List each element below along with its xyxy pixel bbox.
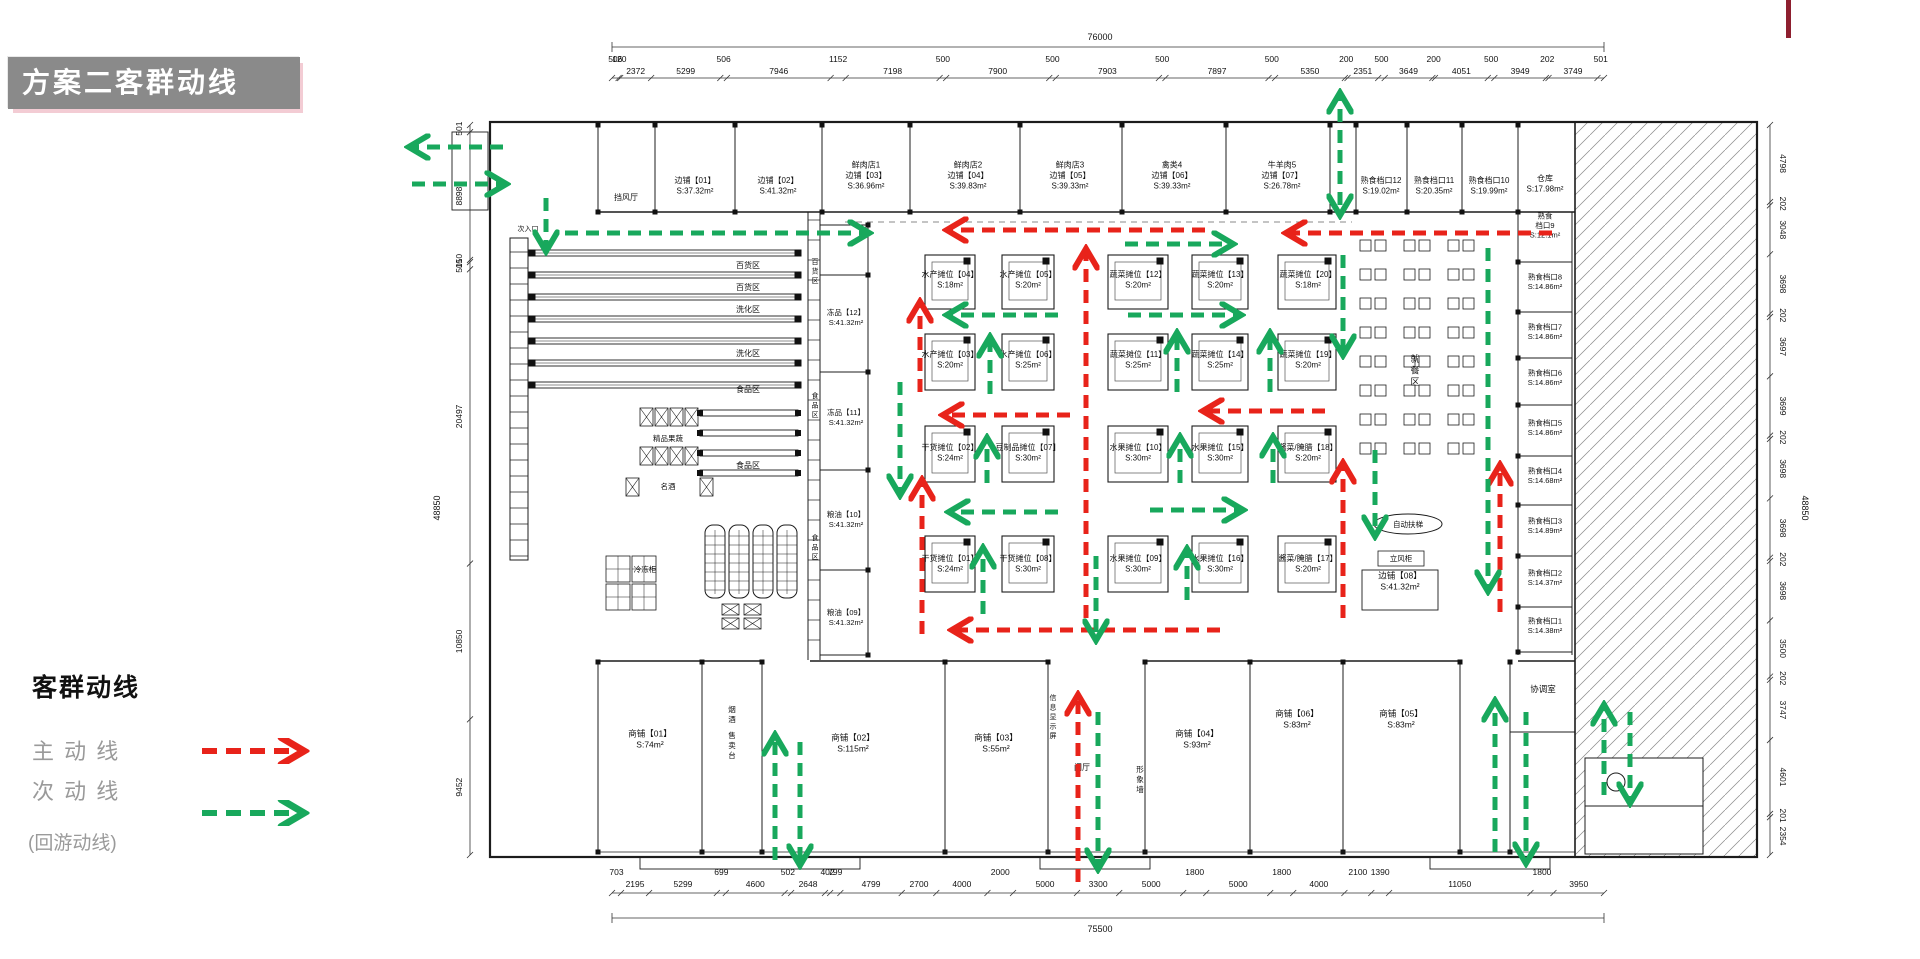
secondary-flow-arrow-icon [196, 800, 316, 826]
right-stall-label: 熟食档口1S:14.38m² [1528, 615, 1563, 635]
dim-top-seg: 2351 [1353, 66, 1372, 76]
market-stall-label: 蔬菜摊位【14】S:25m² [1192, 349, 1249, 370]
dim-bottom-seg: 799 [828, 867, 842, 877]
dim-bottom-seg: 502 [781, 867, 795, 877]
dim-bottom-total: 75500 [1087, 924, 1112, 934]
plan-label: 名酒 [661, 481, 676, 491]
right-stall-label: 熟食档口5S:14.86m² [1528, 417, 1563, 437]
dim-top-seg: 4051 [1452, 66, 1471, 76]
bottom-shop-label: 协调室 [1530, 684, 1556, 694]
top-shop-label: 鲜肉店3边铺【05】S:39.33m² [1050, 160, 1091, 191]
dim-right-seg: 3500 [1778, 639, 1788, 658]
dim-bottom-seg: 5299 [674, 879, 693, 889]
plan-label: 食品区 [736, 460, 760, 470]
dim-top-seg: 506 [717, 54, 731, 64]
plan-label: 挡风厅 [614, 192, 638, 202]
plan-label-vertical: 食品区 [812, 533, 819, 561]
market-stall-label: 水果摊位【16】S:30m² [1192, 553, 1249, 574]
legend-secondary-label: 次 动 线 [32, 779, 120, 804]
dim-top-seg: 5299 [676, 66, 695, 76]
legend-row-secondary: 次 动 线 [26, 774, 356, 814]
dim-bottom-seg: 5000 [1229, 879, 1248, 889]
dim-left-seg: 10850 [454, 629, 464, 653]
dim-top-seg: 501 [1594, 54, 1608, 64]
legend-main-label: 主 动 线 [32, 739, 120, 764]
dim-bottom-seg: 1390 [1371, 867, 1390, 877]
market-stall-label: 干货摊位【01】S:24m² [922, 553, 979, 574]
top-shop-label: 仓库S:17.98m² [1527, 173, 1564, 194]
dim-right-seg: 3698 [1778, 519, 1788, 538]
plan-label-vertical: 信息显示屏 [1050, 693, 1057, 740]
dim-right-seg: 202 [1778, 197, 1788, 211]
market-stall-label: 干货摊位【08】S:30m² [1000, 553, 1057, 574]
bottom-shop-label: 边铺【08】S:41.32m² [1378, 571, 1421, 592]
market-stall-label: 水产摊位【04】S:18m² [922, 269, 979, 290]
market-stall-label: 干货摊位【02】S:24m² [922, 442, 979, 463]
right-stall-label: 熟食档口8S:14.86m² [1528, 271, 1563, 291]
dim-right-seg: 201 [1778, 808, 1788, 822]
bottom-shop-label: 商铺【01】S:74m² [628, 729, 671, 750]
dim-top-seg: 7900 [988, 66, 1007, 76]
dim-bottom-seg: 5000 [1142, 879, 1161, 889]
right-stall-label: 熟食档口3S:14.89m² [1528, 515, 1563, 535]
market-stall-label: 蔬菜摊位【20】S:18m² [1280, 269, 1337, 290]
market-stall-label: 蔬菜摊位【13】S:20m² [1192, 269, 1249, 290]
legend-row-main: 主 动 线 [26, 734, 356, 774]
dim-bottom-seg: 4000 [1309, 879, 1328, 889]
top-shop-label: 牛羊肉5边铺【07】S:26.78m² [1262, 160, 1303, 191]
plan-label-vertical: 百货区 [812, 258, 819, 285]
dim-bottom-seg: 1800 [1532, 867, 1551, 877]
dim-bottom-seg: 2700 [910, 879, 929, 889]
legend-note-label: (回游动线) [28, 828, 356, 855]
dim-bottom-seg: 5000 [1036, 879, 1055, 889]
dim-bottom-seg: 3300 [1089, 879, 1108, 889]
top-shop-label: 鲜肉店1边铺【03】S:36.96m² [846, 160, 887, 191]
dim-top-seg: 500 [1484, 54, 1498, 64]
dim-top-seg: 500 [1265, 54, 1279, 64]
bottom-shop-label: 商铺【02】S:115m² [831, 733, 874, 754]
dim-right-seg: 2354 [1778, 827, 1788, 846]
dim-bottom-seg: 4799 [862, 879, 881, 889]
plan-label: 立风柜 [1390, 553, 1413, 563]
plan-label: 百货区 [736, 260, 760, 270]
dim-top-seg: 7946 [769, 66, 788, 76]
dim-right-seg: 3048 [1778, 220, 1788, 239]
plan-label-vertical: 食品区 [812, 391, 819, 419]
market-stall-label: 豆制品摊位【07】S:30m² [996, 442, 1061, 463]
dim-bottom-seg: 2000 [991, 867, 1010, 877]
dim-right-seg: 3698 [1778, 275, 1788, 294]
top-shop-label: 边铺【02】S:41.32m² [758, 175, 799, 196]
dim-top-total: 76000 [1087, 32, 1112, 42]
market-stall-label: 水产摊位【03】S:20m² [922, 349, 979, 370]
plan-label: 洗化区 [736, 348, 760, 358]
plan-label: 精品果蔬 [653, 433, 683, 443]
plan-label-vertical: 就餐区 [1410, 353, 1419, 387]
dim-right-seg: 3699 [1778, 397, 1788, 416]
dim-top-seg: 200 [1427, 54, 1441, 64]
dim-top-seg: 500 [1155, 54, 1169, 64]
market-stall-label: 水产摊位【06】S:25m² [1000, 349, 1057, 370]
top-shop-label: 鲜肉店2边铺【04】S:39.83m² [948, 160, 989, 191]
dim-bottom-seg: 703 [609, 867, 623, 877]
plan-label-vertical: 形象墙 [1136, 765, 1144, 794]
dim-right-seg: 202 [1778, 308, 1788, 322]
dim-bottom-seg: 1800 [1272, 867, 1291, 877]
market-stall-label: 水果摊位【15】S:30m² [1192, 442, 1249, 463]
right-stall-label: 熟食档口2S:14.37m² [1528, 567, 1563, 587]
dim-bottom-seg: 2195 [626, 879, 645, 889]
dim-top-seg: 5350 [1301, 66, 1320, 76]
building-structure [452, 122, 1757, 869]
dim-right-seg: 4601 [1778, 768, 1788, 787]
dim-right-seg: 3698 [1778, 581, 1788, 600]
plan-label: 食品区 [736, 384, 760, 394]
market-stall-label: 蔬菜摊位【11】S:25m² [1110, 349, 1166, 370]
dim-bottom-seg: 1800 [1185, 867, 1204, 877]
dim-left-seg: 501 [454, 121, 464, 135]
dim-top-seg: 500 [1374, 54, 1388, 64]
dim-top-seg: 7903 [1098, 66, 1117, 76]
slide: 方案二客群动线 76000506120237252995067946115271… [0, 0, 1920, 959]
dim-top-seg: 500 [1045, 54, 1059, 64]
dim-top-seg: 3649 [1399, 66, 1418, 76]
bottom-shop-label: 商铺【04】S:93m² [1175, 729, 1218, 750]
bottom-shop-label: 商铺【03】S:55m² [974, 733, 1017, 754]
market-stall-label: 水果摊位【09】S:30m² [1110, 553, 1167, 574]
dim-top-seg: 3749 [1564, 66, 1583, 76]
dim-right-total: 48850 [1800, 495, 1810, 520]
side-shop-label: 粮油【10】S:41.32m² [827, 509, 865, 529]
legend-heading: 客群动线 [32, 668, 356, 704]
plan-label: 百货区 [736, 282, 760, 292]
legend: 客群动线 主 动 线 次 动 线 (回游动线) [26, 668, 356, 855]
dim-right-seg: 3698 [1778, 459, 1788, 478]
main-flow-arrow-icon [196, 738, 316, 764]
dim-top-seg: 202 [1540, 54, 1554, 64]
plan-label: 冷冻柜 [634, 564, 657, 574]
right-stall-label: 熟食档口4S:14.68m² [1528, 465, 1563, 485]
dim-bottom-seg: 699 [714, 867, 728, 877]
market-stall-label: 水产摊位【05】S:20m² [1000, 269, 1057, 290]
dim-left-seg: 9452 [454, 777, 464, 796]
dim-bottom-seg: 3950 [1569, 879, 1588, 889]
dim-top-seg: 2372 [626, 66, 645, 76]
dim-left-seg: 501 [454, 258, 464, 272]
plan-label: 洗化区 [736, 304, 760, 314]
dim-left-seg: 8898 [454, 186, 464, 205]
dim-right-seg: 3697 [1778, 337, 1788, 356]
dim-top-seg: 7198 [883, 66, 902, 76]
dim-top-seg: 200 [1339, 54, 1353, 64]
dim-right-seg: 202 [1778, 671, 1788, 685]
side-shop-label: 粮油【09】S:41.32m² [827, 607, 865, 627]
top-shop-label: 熟食档口12S:19.02m² [1361, 175, 1402, 196]
dim-bottom-seg: 4600 [746, 879, 765, 889]
bottom-shop-label: 商铺【06】S:83m² [1275, 709, 1318, 730]
top-shop-label: 禽类4边铺【06】S:39.33m² [1152, 160, 1193, 191]
dim-top-seg: 7897 [1208, 66, 1227, 76]
market-stall-label: 蔬菜摊位【19】S:20m² [1280, 349, 1337, 370]
dim-right-seg: 202 [1778, 430, 1788, 444]
dim-bottom-seg: 4000 [952, 879, 971, 889]
dim-right-seg: 3747 [1778, 701, 1788, 720]
plan-label-vertical: 售卖台 [728, 730, 736, 760]
dim-bottom-seg: 11050 [1448, 879, 1471, 889]
top-shop-label: 边铺【01】S:37.32m² [675, 175, 716, 196]
plan-label: 次入口 [518, 224, 539, 233]
plan-label: 自动扶梯 [1393, 519, 1423, 529]
dim-right-seg: 4798 [1778, 154, 1788, 173]
dim-top-seg: 120 [612, 54, 626, 64]
top-shop-label: 熟食档口10S:19.99m² [1469, 175, 1510, 196]
dim-top-seg: 1152 [829, 54, 848, 64]
market-stall-label: 水果摊位【10】S:30m² [1110, 442, 1167, 463]
dim-right-seg: 202 [1778, 552, 1788, 566]
top-shop-label: 熟食档口11S:20.35m² [1414, 175, 1455, 196]
dim-bottom-seg: 2100 [1348, 867, 1367, 877]
right-stall-label: 熟食档口6S:14.86m² [1528, 367, 1563, 387]
dim-left-seg: 20497 [454, 404, 464, 428]
dim-bottom-seg: 2648 [799, 879, 818, 889]
dim-top-seg: 500 [936, 54, 950, 64]
plan-label-vertical: 烟酒 [728, 705, 736, 724]
dim-top-seg: 3949 [1511, 66, 1530, 76]
right-stall-label: 熟食档口7S:14.86m² [1528, 321, 1563, 341]
side-shop-label: 冻品【12】S:41.32m² [827, 307, 865, 327]
side-shop-label: 冻品【11】S:41.32m² [827, 407, 865, 427]
bottom-shop-label: 商铺【05】S:83m² [1379, 709, 1422, 730]
dim-left-total: 48850 [432, 495, 442, 520]
market-stall-label: 蔬菜摊位【12】S:20m² [1110, 269, 1167, 290]
